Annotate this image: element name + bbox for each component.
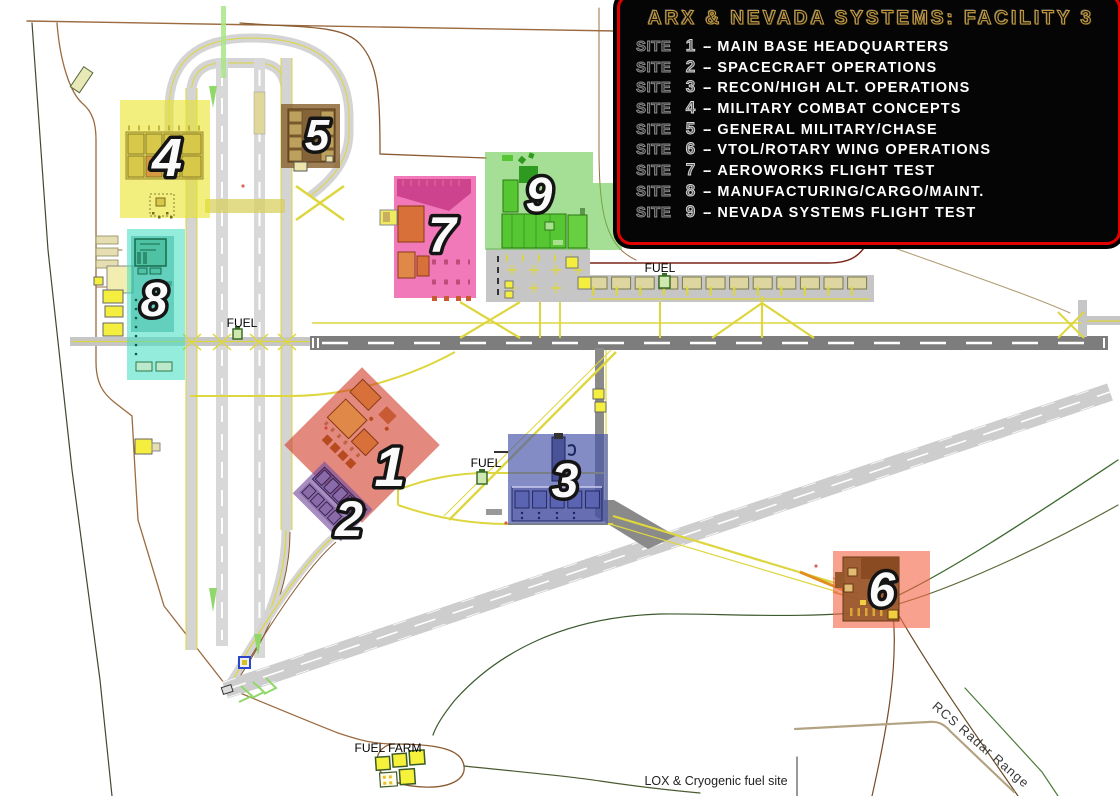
site-7-number: 7 [428, 207, 458, 263]
site-number: 4 [682, 98, 699, 118]
fuel-label-center: FUEL [471, 456, 502, 470]
separator: -- [703, 100, 710, 116]
site-word: SITE [636, 162, 682, 179]
legend-row-site-3: SITE 3 -- RECON/HIGH ALT. OPERATIONS [636, 77, 1106, 98]
lox-label: LOX & Cryogenic fuel site [644, 774, 787, 788]
site-number: 3 [682, 77, 699, 97]
site-description: GENERAL MILITARY/CHASE [717, 122, 938, 138]
fuel-pump-icon-north [659, 273, 670, 288]
fuel-pump-icon-center [477, 469, 487, 484]
site-number: 6 [682, 139, 699, 159]
legend-row-site-7: SITE 7 -- AEROWORKS FLIGHT TEST [636, 160, 1106, 181]
site-word: SITE [636, 204, 682, 221]
site-6-number: 6 [869, 564, 896, 617]
site-number: 9 [682, 202, 699, 222]
legend-row-site-5: SITE 5 -- GENERAL MILITARY/CHASE [636, 119, 1106, 140]
site-word: SITE [636, 38, 682, 55]
site-4-number: 4 [151, 128, 182, 188]
separator: -- [703, 204, 710, 220]
separator: -- [703, 121, 710, 137]
legend-row-site-9: SITE 9 -- NEVADA SYSTEMS FLIGHT TEST [636, 202, 1106, 223]
site-number: 1 [682, 36, 699, 56]
rcs-road [795, 722, 1014, 792]
site-5-number: 5 [305, 111, 330, 160]
runway-centerline-marking [221, 6, 226, 78]
legend-row-site-1: SITE 1 -- MAIN BASE HEADQUARTERS [636, 36, 1106, 57]
fuel-farm-label: FUEL FARM [355, 741, 422, 755]
site-description: SPACECRAFT OPERATIONS [717, 60, 937, 76]
site-number: 5 [682, 119, 699, 139]
legend-row-site-2: SITE 2 -- SPACECRAFT OPERATIONS [636, 57, 1106, 78]
site-word: SITE [636, 59, 682, 76]
site-description: RECON/HIGH ALT. OPERATIONS [717, 80, 970, 96]
separator: -- [703, 38, 710, 54]
fuel-farm-tanks [375, 750, 426, 787]
site-description: VTOL/ROTARY WING OPERATIONS [717, 142, 991, 158]
separator: -- [703, 59, 710, 75]
site-8-number: 8 [141, 274, 168, 327]
site-description: MILITARY COMBAT CONCEPTS [717, 101, 961, 117]
site-description: MANUFACTURING/CARGO/MAINT. [717, 184, 984, 200]
legend-row-site-6: SITE 6 -- VTOL/ROTARY WING OPERATIONS [636, 139, 1106, 160]
site-word: SITE [636, 141, 682, 158]
site-2-number: 2 [334, 491, 363, 547]
separator: -- [703, 79, 710, 95]
site-word: SITE [636, 183, 682, 200]
separator: -- [703, 162, 710, 178]
site-number: 7 [682, 160, 699, 180]
site-description: AEROWORKS FLIGHT TEST [717, 163, 935, 179]
site-3-number: 3 [552, 455, 579, 508]
site-9-overlay [485, 152, 622, 250]
separator: -- [703, 141, 710, 157]
legend-row-site-4: SITE 4 -- MILITARY COMBAT CONCEPTS [636, 98, 1106, 119]
site-word: SITE [636, 79, 682, 96]
site-number: 2 [682, 57, 699, 77]
legend-title: ARX & NEVADA SYSTEMS: FACILITY 3 [636, 8, 1106, 30]
site-description: MAIN BASE HEADQUARTERS [717, 39, 949, 55]
helipad-mark [486, 509, 502, 515]
separator: -- [703, 183, 710, 199]
legend-row-site-8: SITE 8 -- MANUFACTURING/CARGO/MAINT. [636, 181, 1106, 202]
site-number: 8 [682, 181, 699, 201]
fuel-label-north: FUEL [645, 261, 676, 275]
site-word: SITE [636, 121, 682, 138]
site-9-number: 9 [526, 169, 553, 222]
legend-panel: ARX & NEVADA SYSTEMS: FACILITY 3 SITE 1 … [617, 0, 1120, 245]
site-description: NEVADA SYSTEMS FLIGHT TEST [717, 205, 976, 221]
site-1-number: 1 [374, 435, 405, 498]
fuel-label-west: FUEL [227, 316, 258, 330]
site-word: SITE [636, 100, 682, 117]
facility-map-page: 1 2 3 4 5 6 7 8 9 FUEL FUEL FUEL FUEL FA… [0, 0, 1120, 796]
